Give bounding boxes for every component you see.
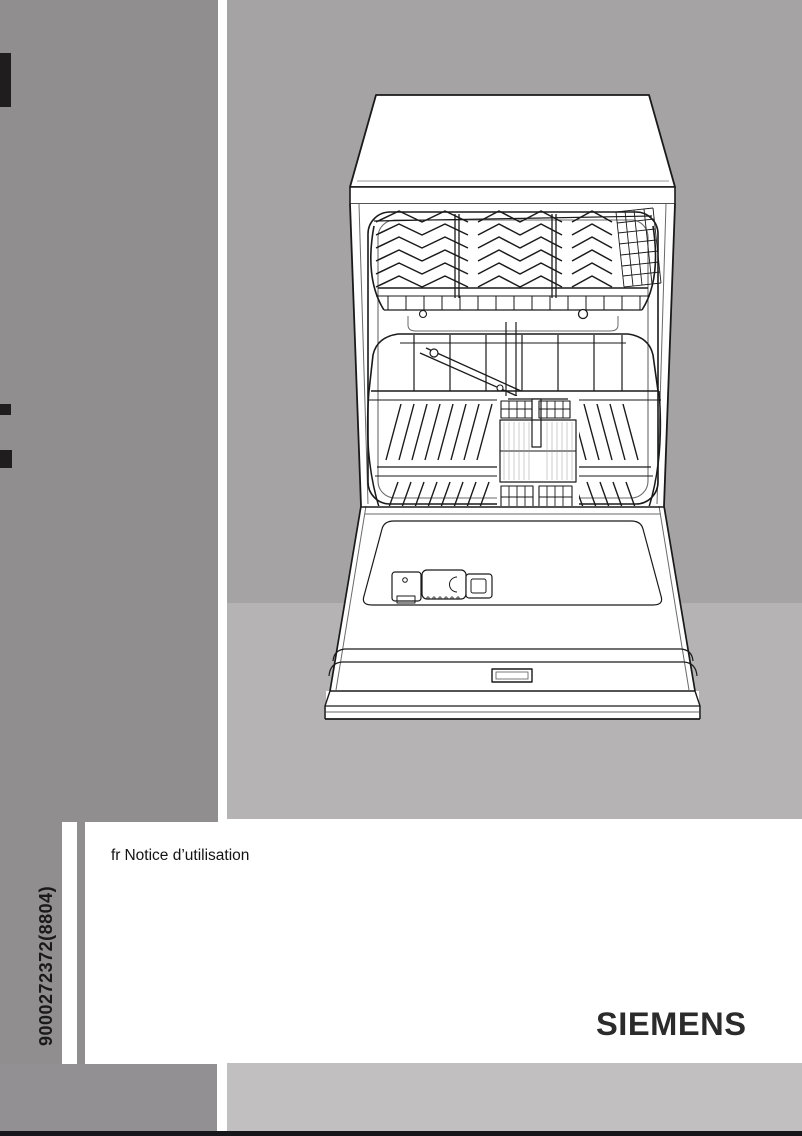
brand-logo: SIEMENS [596,1008,746,1040]
door [329,506,697,691]
door-handle [492,669,532,682]
doc-title: Notice d’utilisation [124,847,249,864]
language-code: fr [111,847,120,864]
detergent-dispenser [392,570,492,603]
spine-rule [77,822,85,1064]
bleed-tab-mid-2 [0,450,12,468]
left-bleed-column [0,0,218,822]
dishwasher-illustration [300,80,720,730]
bleed-tab-mid-1 [0,404,11,415]
footer-left-band [0,1064,217,1131]
bottom-black-bar [0,1131,802,1136]
manual-cover-page: { "page": { "kind": "appliance-manual-co… [0,0,802,1136]
footer-right-band [227,1063,802,1131]
vertical-doc-code: 9000272372(8804) [36,886,57,1046]
notice-line: frNotice d’utilisation [111,846,249,866]
bleed-tab-top [0,53,11,107]
